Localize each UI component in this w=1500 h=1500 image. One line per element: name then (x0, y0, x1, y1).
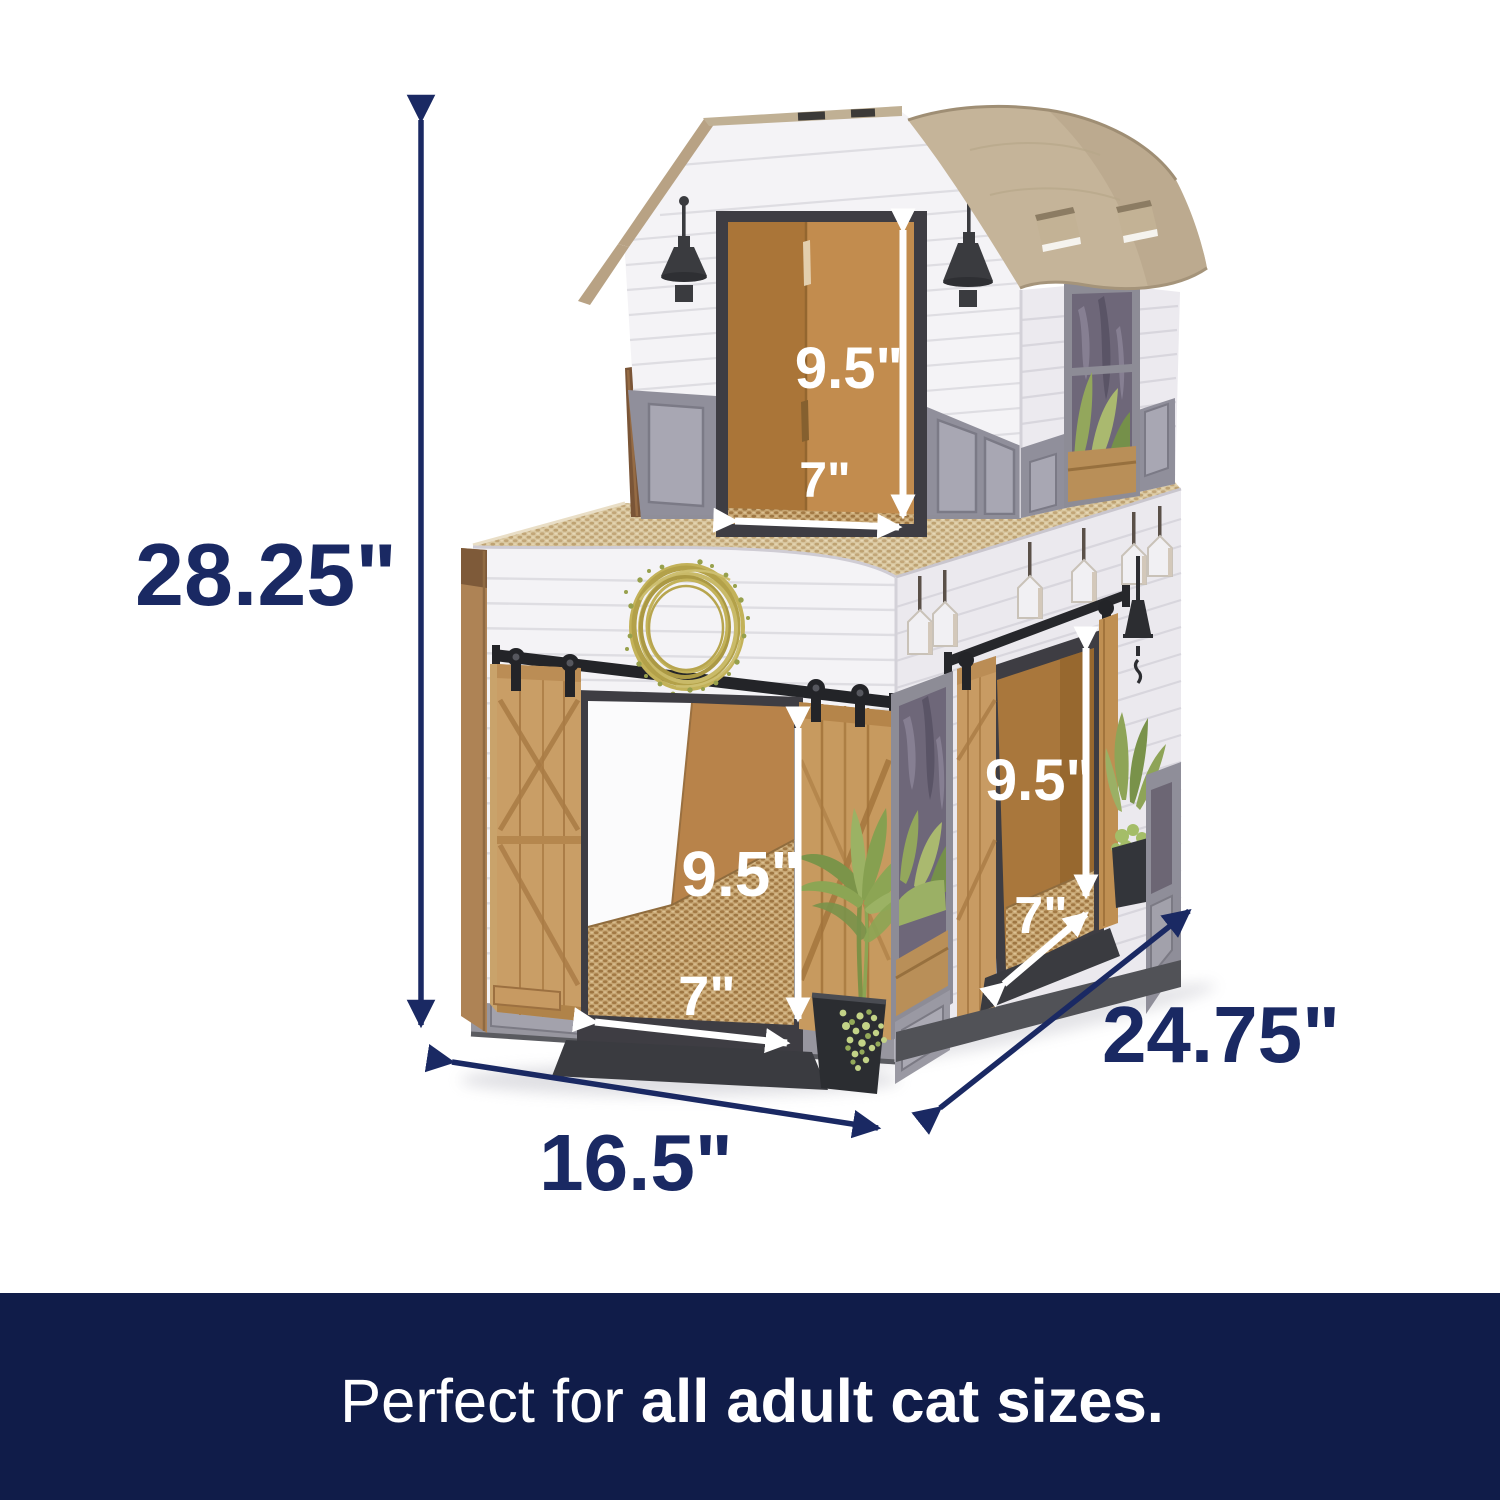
svg-text:Perfect for all adult cat size: Perfect for all adult cat sizes. (340, 1367, 1164, 1436)
svg-text:9.5": 9.5" (795, 336, 903, 401)
svg-text:16.5": 16.5" (539, 1118, 733, 1207)
svg-text:7": 7" (1014, 887, 1068, 945)
svg-text:28.25": 28.25" (135, 525, 397, 624)
svg-text:7": 7" (678, 964, 736, 1027)
svg-text:7": 7" (799, 452, 851, 508)
svg-text:9.5": 9.5" (985, 748, 1093, 813)
svg-text:24.75": 24.75" (1102, 990, 1340, 1079)
svg-text:9.5": 9.5" (681, 838, 800, 910)
